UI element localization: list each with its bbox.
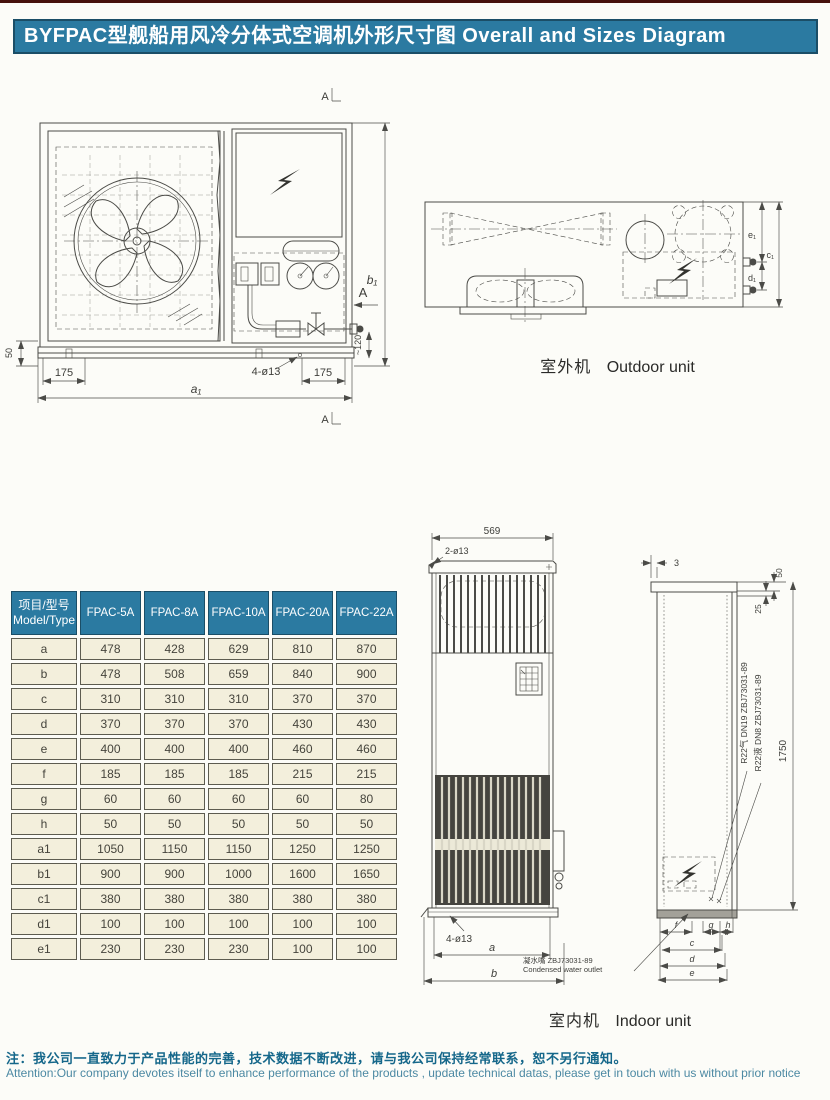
row-label: d1 <box>11 913 77 935</box>
table-cell: 60 <box>144 788 205 810</box>
dim-b1: b₁ <box>367 273 378 287</box>
dim-120: ~120 <box>353 335 363 355</box>
table-cell: 185 <box>208 763 269 785</box>
dim-c: c <box>690 938 695 948</box>
table-cell: 900 <box>336 663 397 685</box>
table-cell: 460 <box>336 738 397 760</box>
table-cell: 310 <box>144 688 205 710</box>
table-cell: 1250 <box>336 838 397 860</box>
table-row: c1 380 380 380 380 380 <box>11 888 397 910</box>
table-cell: 1600 <box>272 863 333 885</box>
outdoor-top-dimensions: e₁ d₁ c₁ <box>743 202 783 307</box>
indoor-front-body <box>421 561 564 917</box>
table-cell: 400 <box>208 738 269 760</box>
table-cell: 230 <box>80 938 141 960</box>
table-cell: 380 <box>144 888 205 910</box>
table-cell: 50 <box>80 813 141 835</box>
table-cell: 370 <box>80 713 141 735</box>
outdoor-top-body <box>425 200 757 324</box>
table-row: e 400 400 400 460 460 <box>11 738 397 760</box>
note-en: Attention:Our company devotes itself to … <box>6 1066 830 1080</box>
table-cell: 508 <box>144 663 205 685</box>
outdoor-top-drawing: e₁ d₁ c₁ <box>405 150 830 350</box>
col-header-model: FPAC-20A <box>272 591 333 635</box>
table-cell: 430 <box>272 713 333 735</box>
table-cell: 478 <box>80 663 141 685</box>
table-cell: 310 <box>208 688 269 710</box>
outdoor-caption-zh: 室外机 <box>540 359 591 376</box>
table-row: a1 1050 1150 1150 1250 1250 <box>11 838 397 860</box>
table-cell: 370 <box>336 688 397 710</box>
outdoor-front-dimensions: 50 175 4-ø13 175 a₁ b₁ ~120 A A A <box>4 88 390 426</box>
table-row: b 478 508 659 840 900 <box>11 663 397 685</box>
table-cell: 310 <box>80 688 141 710</box>
dim-50: 50 <box>774 568 784 578</box>
row-label: c1 <box>11 888 77 910</box>
table-cell: 80 <box>336 788 397 810</box>
table-cell: 100 <box>336 938 397 960</box>
table-cell: 50 <box>144 813 205 835</box>
col-header-model: FPAC-8A <box>144 591 205 635</box>
table-cell: 460 <box>272 738 333 760</box>
table-cell: 60 <box>208 788 269 810</box>
table-cell: 100 <box>272 938 333 960</box>
fan <box>64 171 210 313</box>
table-row: g 60 60 60 60 80 <box>11 788 397 810</box>
table-row: c 310 310 310 370 370 <box>11 688 397 710</box>
row-label: b <box>11 663 77 685</box>
dim-g: g <box>708 920 713 930</box>
table-cell: 810 <box>272 638 333 660</box>
dim-c1: c₁ <box>766 250 774 260</box>
section-mark-top: A <box>321 91 329 103</box>
table-cell: 100 <box>80 913 141 935</box>
table-cell: 1150 <box>144 838 205 860</box>
outdoor-caption-en: Outdoor unit <box>607 359 695 376</box>
col-header-model: FPAC-22A <box>336 591 397 635</box>
row-label: h <box>11 813 77 835</box>
table-row: f 185 185 185 215 215 <box>11 763 397 785</box>
table-cell: 900 <box>144 863 205 885</box>
outdoor-caption: 室外机 Outdoor unit <box>405 353 830 377</box>
table-cell: 1150 <box>208 838 269 860</box>
table-cell: 380 <box>272 888 333 910</box>
indoor-side-body <box>651 582 737 918</box>
table-cell: 840 <box>272 663 333 685</box>
table-cell: 60 <box>272 788 333 810</box>
dim-e1: e₁ <box>748 230 756 240</box>
dim-4xd13: 4-ø13 <box>252 366 281 378</box>
table-cell: 428 <box>144 638 205 660</box>
dim-2xd13: 2-ø13 <box>445 546 469 556</box>
spec-table: 项目/型号 Model/Type FPAC-5A FPAC-8A FPAC-10… <box>8 588 400 963</box>
table-cell: 380 <box>208 888 269 910</box>
table-cell: 370 <box>144 713 205 735</box>
table-header-row: 项目/型号 Model/Type FPAC-5A FPAC-8A FPAC-10… <box>11 591 397 635</box>
dim-a1: a₁ <box>191 382 202 396</box>
row-label: e <box>11 738 77 760</box>
table-cell: 400 <box>144 738 205 760</box>
table-cell: 870 <box>336 638 397 660</box>
dim-569: 569 <box>484 526 501 537</box>
dim-175-right: 175 <box>314 367 332 379</box>
indoor-front-drawing: 569 2-ø13 <box>412 523 607 995</box>
dim-4xd13: 4-ø13 <box>446 934 473 945</box>
row-label: g <box>11 788 77 810</box>
indoor-caption-en: Indoor unit <box>615 1013 691 1030</box>
dim-a: a <box>489 942 495 954</box>
pipe-liquid-label: R22液 DN8 ZBJ73031-89 <box>753 674 763 771</box>
note-zh: 注：我公司一直致力于产品性能的完善，技术数据不断改进，请与我公司保持经常联系，恕… <box>6 1048 826 1067</box>
dim-d1: d₁ <box>748 273 756 283</box>
indoor-caption: 室内机 Indoor unit <box>480 1007 760 1031</box>
table-cell: 50 <box>208 813 269 835</box>
condensate-outlet-zh: 凝水嘴 ZBJ73031-89 <box>523 956 698 965</box>
table-cell: 1650 <box>336 863 397 885</box>
table-cell: 230 <box>208 938 269 960</box>
table-cell: 215 <box>336 763 397 785</box>
control-box <box>516 663 542 695</box>
table-cell: 370 <box>208 713 269 735</box>
table-cell: 230 <box>144 938 205 960</box>
col-header-model: FPAC-5A <box>80 591 141 635</box>
table-row: e1 230 230 230 100 100 <box>11 938 397 960</box>
indoor-front-dim-top: 569 2-ø13 <box>432 526 553 564</box>
table-row: h 50 50 50 50 50 <box>11 813 397 835</box>
row-label: a1 <box>11 838 77 860</box>
table-cell: 50 <box>272 813 333 835</box>
dim-f: f <box>675 920 679 930</box>
table-cell: 100 <box>336 913 397 935</box>
table-cell: 430 <box>336 713 397 735</box>
pipe-gas-label: R22气 DN19 ZBJ73031-89 <box>739 662 749 764</box>
table-cell: 659 <box>208 663 269 685</box>
table-cell: 100 <box>272 913 333 935</box>
table-cell: 60 <box>80 788 141 810</box>
table-cell: 400 <box>80 738 141 760</box>
dim-h: h <box>725 920 730 930</box>
indoor-caption-zh: 室内机 <box>549 1013 600 1030</box>
row-label: d <box>11 713 77 735</box>
table-cell: 50 <box>336 813 397 835</box>
table-cell: 370 <box>272 688 333 710</box>
table-cell: 629 <box>208 638 269 660</box>
table-row: b1 900 900 1000 1600 1650 <box>11 863 397 885</box>
table-cell: 478 <box>80 638 141 660</box>
outdoor-front-drawing: 50 175 4-ø13 175 a₁ b₁ ~120 A A A <box>0 85 400 430</box>
condensate-outlet-en: Condensed water outlet <box>523 965 698 974</box>
dim-25: 25 <box>753 604 763 614</box>
indoor-side-drawing: R22气 DN19 ZBJ73031-89 R22液 DN8 ZBJ73031-… <box>628 523 830 1003</box>
table-cell: 1000 <box>208 863 269 885</box>
page-title: BYFPAC型舰船用风冷分体式空调机外形尺寸图 Overall and Size… <box>13 19 818 54</box>
table-cell: 100 <box>208 913 269 935</box>
dim-1750: 1750 <box>778 739 789 762</box>
table-cell: 1250 <box>272 838 333 860</box>
table-row: d1 100 100 100 100 100 <box>11 913 397 935</box>
table-cell: 185 <box>80 763 141 785</box>
col-header-model: FPAC-10A <box>208 591 269 635</box>
top-rule <box>0 0 830 3</box>
condensate-outlet-note: 凝水嘴 ZBJ73031-89 Condensed water outlet <box>523 956 698 974</box>
table-corner-header: 项目/型号 Model/Type <box>11 591 77 635</box>
section-mark-bottom: A <box>321 414 329 426</box>
table-cell: 215 <box>272 763 333 785</box>
table-cell: 100 <box>144 913 205 935</box>
row-label: e1 <box>11 938 77 960</box>
row-label: c <box>11 688 77 710</box>
section-mark-right: A <box>359 285 368 300</box>
table-row: d 370 370 370 430 430 <box>11 713 397 735</box>
datasheet-page: BYFPAC型舰船用风冷分体式空调机外形尺寸图 Overall and Size… <box>0 0 830 1100</box>
base-rail <box>38 347 354 358</box>
row-label: b1 <box>11 863 77 885</box>
table-row: a 478 428 629 810 870 <box>11 638 397 660</box>
table-cell: 1050 <box>80 838 141 860</box>
row-label: a <box>11 638 77 660</box>
refrigeration-components <box>234 241 364 337</box>
lightning-icon <box>270 169 300 195</box>
dim-3: 3 <box>674 558 679 568</box>
electrical-panel <box>232 129 346 343</box>
row-label: f <box>11 763 77 785</box>
table-cell: 185 <box>144 763 205 785</box>
dim-b: b <box>491 968 497 980</box>
indoor-front-dim-bottom: 4-ø13 a b <box>424 916 564 985</box>
table-cell: 380 <box>80 888 141 910</box>
dim-175-left: 175 <box>55 367 73 379</box>
dim-50: 50 <box>4 348 14 358</box>
table-cell: 900 <box>80 863 141 885</box>
table-cell: 380 <box>336 888 397 910</box>
